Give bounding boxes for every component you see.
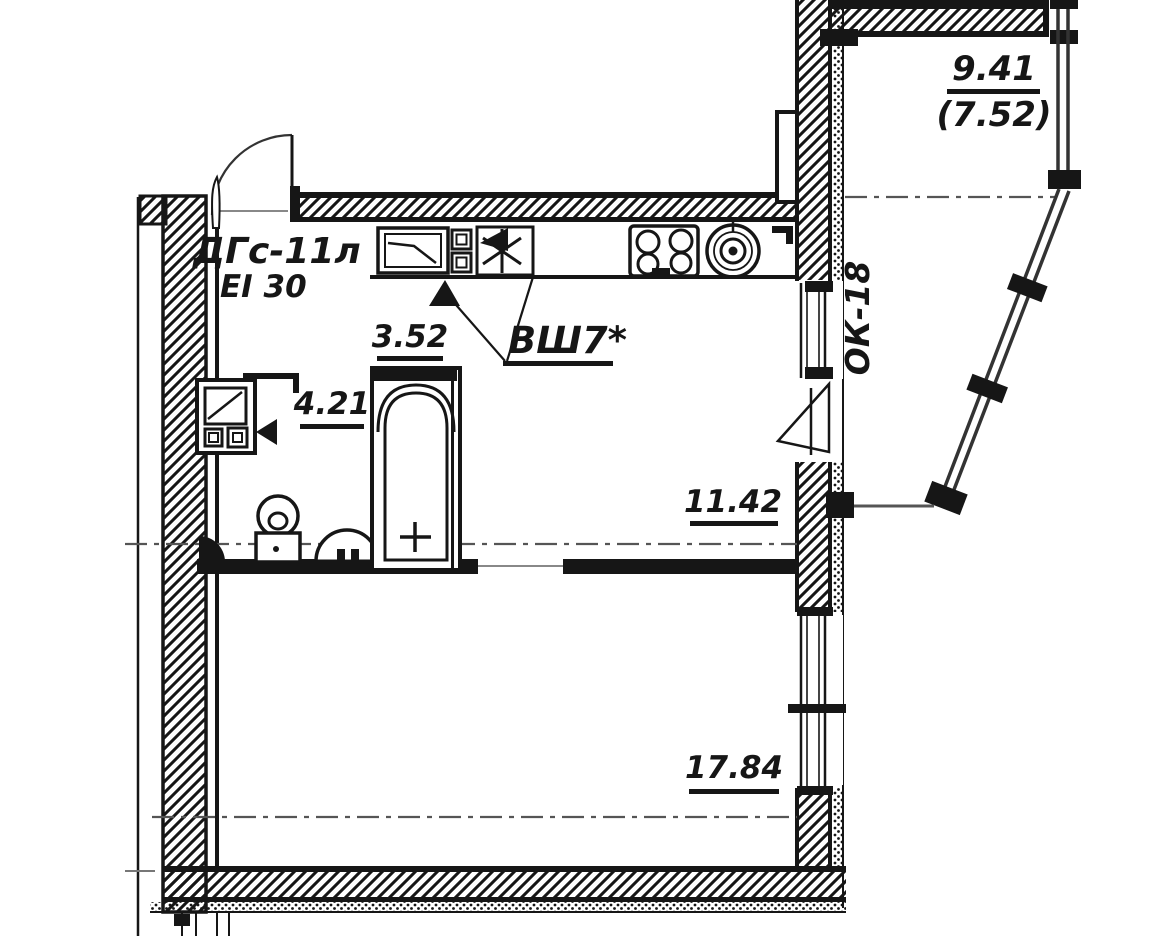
- balcony-area-counted-label: (7.52): [937, 95, 1052, 135]
- kitchen-window: [795, 281, 843, 379]
- balcony-area-total-label: 9.41: [952, 49, 1036, 89]
- area-421-label: 4.21: [293, 386, 371, 422]
- fire-rating-label: EI 30: [220, 269, 307, 305]
- door-mark-label: ДГс-11л: [192, 231, 361, 272]
- floor-plan-canvas: 9.41 (7.52) ДГс-11л EI 30 3.52 4.21 ВШ7*…: [0, 0, 1150, 936]
- floor-plan-drawing: 9.41 (7.52) ДГс-11л EI 30 3.52 4.21 ВШ7*…: [0, 0, 1150, 936]
- bathtub-icon: [372, 368, 460, 570]
- area-1142-label: 11.42: [684, 484, 782, 520]
- area-352-label: 3.52: [372, 319, 449, 355]
- area-1784-label: 17.84: [685, 750, 783, 786]
- vent-mark-label: ВШ7*: [508, 319, 627, 362]
- lower-window: [788, 607, 846, 795]
- window-mark-label: ОК-18: [838, 261, 877, 376]
